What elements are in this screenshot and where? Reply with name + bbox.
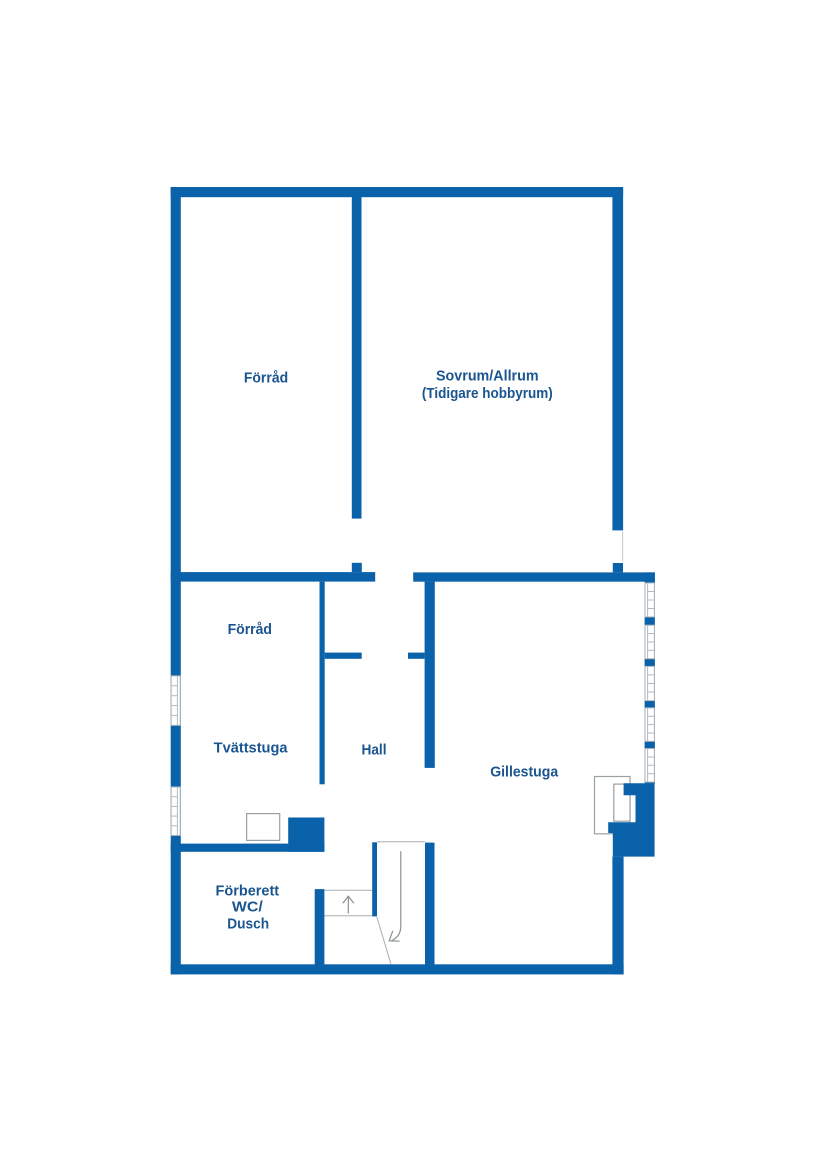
svg-text:Förberett: Förberett [216, 883, 280, 900]
svg-text:Hall: Hall [361, 741, 386, 758]
svg-text:Förråd: Förråd [244, 369, 288, 386]
svg-text:Sovrum/Allrum: Sovrum/Allrum [436, 368, 539, 385]
svg-text:(Tidigare hobbyrum): (Tidigare hobbyrum) [422, 385, 553, 402]
svg-text:Dusch: Dusch [227, 916, 269, 933]
svg-text:Tvättstuga: Tvättstuga [214, 739, 289, 756]
svg-text:WC/: WC/ [232, 899, 264, 916]
svg-text:Förråd: Förråd [228, 621, 272, 638]
svg-text:Gillestuga: Gillestuga [490, 764, 559, 781]
